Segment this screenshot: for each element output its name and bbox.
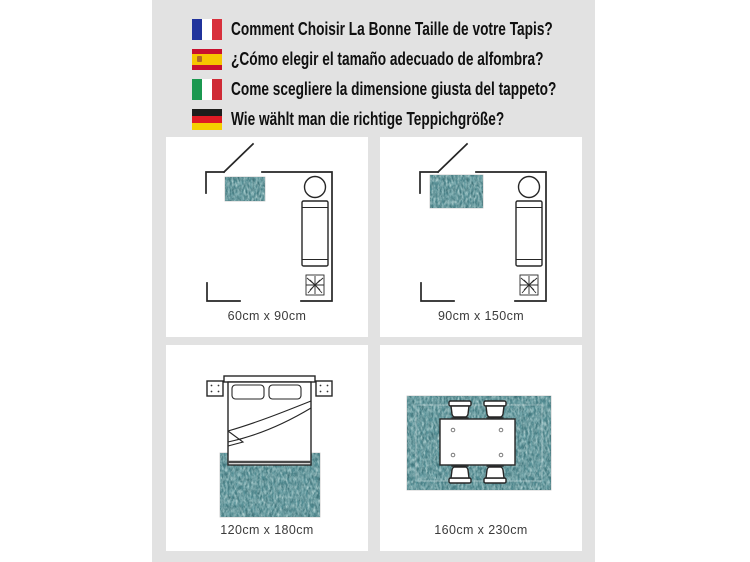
question-row-french: Comment Choisir La Bonne Taille de votre… xyxy=(192,14,659,44)
dining-top-view-svg xyxy=(380,345,582,551)
dining-table xyxy=(440,419,515,465)
bedroom-floorplan-svg xyxy=(380,137,582,337)
chair-bottom-left xyxy=(449,466,471,483)
rug-size-guide-infographic: Comment Choisir La Bonne Taille de votre… xyxy=(0,0,750,562)
nightstand-left xyxy=(207,381,223,396)
question-text-spanish: ¿Cómo elegir el tamaño adecuado de alfom… xyxy=(231,49,543,70)
panel-rug-120x180: 120cm x 180cm xyxy=(166,345,368,551)
panel-rug-60x90: 60cm x 90cm xyxy=(166,137,368,337)
header-questions: Comment Choisir La Bonne Taille de votre… xyxy=(192,14,659,134)
door-swing-line xyxy=(438,144,467,172)
question-row-german: Wie wählt man die richtige Teppichgröße? xyxy=(192,104,659,134)
flag-france-icon xyxy=(192,19,222,40)
rug-90x150 xyxy=(430,175,483,208)
panel-rug-90x150: 90cm x 150cm xyxy=(380,137,582,337)
flag-spain-icon xyxy=(192,49,222,70)
chair-top-left xyxy=(449,401,471,418)
question-text-italian: Come scegliere la dimensione giusta del … xyxy=(231,79,556,100)
potted-plant xyxy=(306,275,324,295)
potted-plant xyxy=(520,275,538,295)
panel-rug-160x230: 160cm x 230cm xyxy=(380,345,582,551)
size-label: 120cm x 180cm xyxy=(166,522,368,538)
content-column: Comment Choisir La Bonne Taille de votre… xyxy=(152,0,595,562)
rug-60x90 xyxy=(225,177,265,201)
bench-furniture xyxy=(302,201,328,266)
door-swing-line xyxy=(224,144,253,172)
flag-germany-icon xyxy=(192,109,222,130)
size-label: 60cm x 90cm xyxy=(166,308,368,324)
chair-top-right xyxy=(484,401,506,418)
size-label: 90cm x 150cm xyxy=(380,308,582,324)
bedroom-floorplan-svg xyxy=(166,137,368,337)
chair-bottom-right xyxy=(484,466,506,483)
flag-italy-icon xyxy=(192,79,222,100)
question-text-french: Comment Choisir La Bonne Taille de votre… xyxy=(231,19,553,40)
side-table xyxy=(519,177,540,198)
size-label: 160cm x 230cm xyxy=(380,522,582,538)
bench-furniture xyxy=(516,201,542,266)
question-row-italian: Come scegliere la dimensione giusta del … xyxy=(192,74,659,104)
bed-top-view-svg xyxy=(166,345,368,551)
headboard xyxy=(224,376,315,382)
bed xyxy=(224,376,315,465)
side-table xyxy=(305,177,326,198)
question-text-german: Wie wählt man die richtige Teppichgröße? xyxy=(231,109,504,130)
nightstand-right xyxy=(316,381,332,396)
question-row-spanish: ¿Cómo elegir el tamaño adecuado de alfom… xyxy=(192,44,659,74)
